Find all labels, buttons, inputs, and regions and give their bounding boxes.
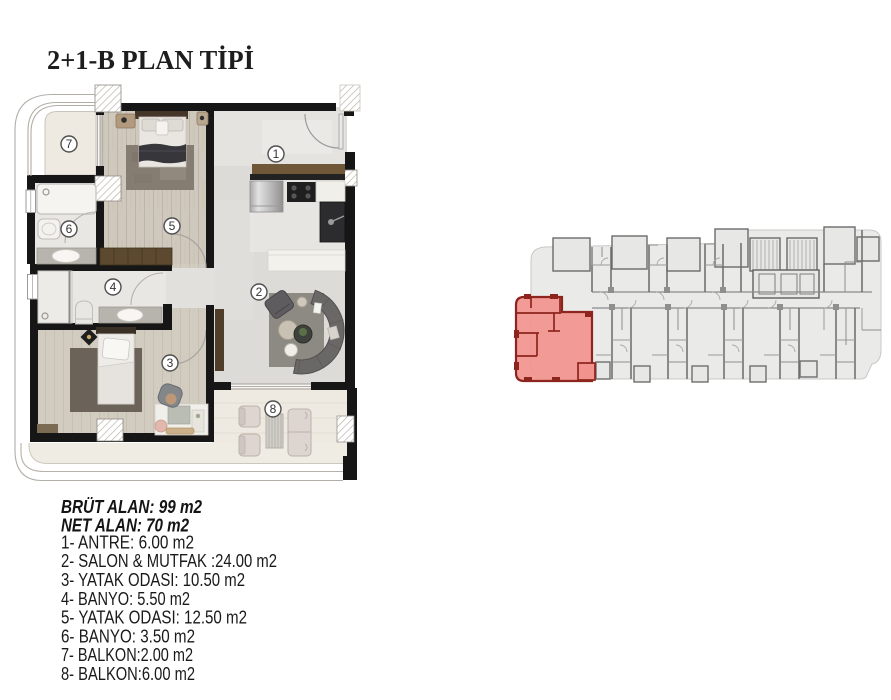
- svg-text:2- SALON & MUTFAK :24.00 m2: 2- SALON & MUTFAK :24.00 m2: [61, 550, 277, 571]
- svg-text:3- YATAK ODASI: 10.50 m2: 3- YATAK ODASI: 10.50 m2: [61, 569, 245, 590]
- svg-text:5: 5: [169, 219, 176, 233]
- svg-text:3: 3: [167, 356, 174, 370]
- svg-text:2: 2: [256, 285, 263, 299]
- svg-text:1: 1: [273, 147, 280, 161]
- svg-text:7- BALKON:2.00 m2: 7- BALKON:2.00 m2: [61, 644, 193, 665]
- svg-text:6: 6: [66, 222, 73, 236]
- svg-text:8: 8: [270, 402, 277, 416]
- svg-text:7: 7: [66, 137, 73, 151]
- svg-text:5- YATAK ODASI: 12.50 m2: 5- YATAK ODASI: 12.50 m2: [61, 607, 247, 628]
- svg-text:2+1-B PLAN TİPİ: 2+1-B PLAN TİPİ: [47, 45, 254, 75]
- svg-text:8- BALKON:6.00 m2: 8- BALKON:6.00 m2: [61, 663, 195, 684]
- svg-text:4: 4: [110, 280, 117, 294]
